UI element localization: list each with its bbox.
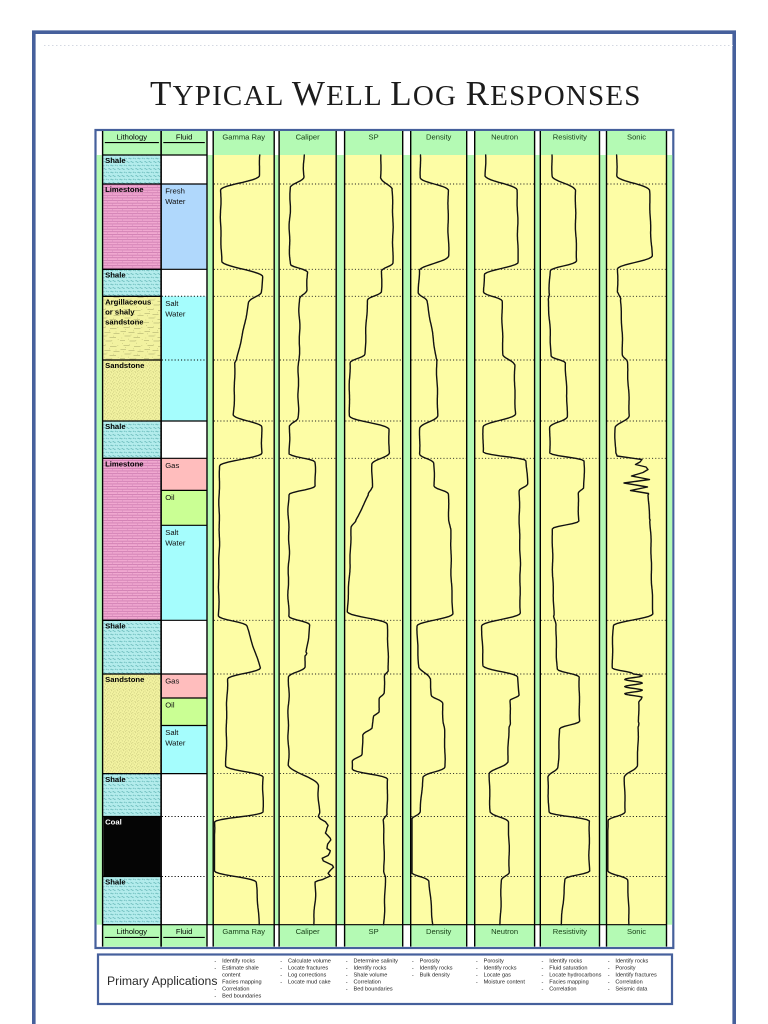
svg-text:Locate gas: Locate gas: [484, 973, 512, 979]
svg-text:Locate mud cake: Locate mud cake: [288, 980, 331, 986]
svg-text:Shale: Shale: [105, 422, 126, 431]
svg-text:-: -: [542, 973, 544, 979]
svg-text:-: -: [608, 973, 610, 979]
svg-text:Shale: Shale: [105, 156, 126, 165]
svg-text:TYPICAL WELL LOG RESPONSES: TYPICAL WELL LOG RESPONSES: [150, 74, 642, 113]
svg-text:-: -: [542, 959, 544, 965]
svg-text:Identify rocks: Identify rocks: [222, 959, 255, 965]
svg-text:sandstone: sandstone: [105, 318, 144, 327]
svg-text:Bed boundaries: Bed boundaries: [222, 994, 261, 1000]
svg-text:Seismic data: Seismic data: [615, 987, 648, 993]
svg-text:-: -: [214, 994, 216, 1000]
svg-text:-: -: [214, 987, 216, 993]
svg-text:Porosity: Porosity: [484, 959, 504, 965]
svg-text:Estimate shale: Estimate shale: [222, 966, 259, 972]
svg-text:Coal: Coal: [105, 818, 122, 827]
svg-text:SP: SP: [369, 133, 379, 142]
svg-text:Calculate volume: Calculate volume: [288, 959, 331, 965]
svg-text:Fluid: Fluid: [176, 133, 192, 142]
svg-text:-: -: [476, 959, 478, 965]
svg-text:Shale: Shale: [105, 622, 126, 631]
svg-text:Log corrections: Log corrections: [288, 973, 326, 979]
svg-text:Lithology: Lithology: [117, 133, 148, 142]
svg-text:Gamma Ray: Gamma Ray: [222, 133, 265, 142]
svg-text:Bed boundaries: Bed boundaries: [354, 987, 393, 993]
svg-text:Determine salinity: Determine salinity: [354, 959, 399, 965]
svg-text:Fluid saturation: Fluid saturation: [549, 966, 587, 972]
svg-text:Sandstone: Sandstone: [105, 361, 145, 370]
svg-text:Density: Density: [426, 133, 452, 142]
svg-text:Limestone: Limestone: [105, 460, 144, 469]
svg-text:-: -: [280, 980, 282, 986]
svg-text:Sonic: Sonic: [627, 927, 646, 936]
svg-text:Moisture content: Moisture content: [484, 980, 526, 986]
svg-text:-: -: [214, 980, 216, 986]
svg-text:Shale volume: Shale volume: [354, 973, 388, 979]
svg-text:Neutron: Neutron: [491, 927, 518, 936]
svg-text:-: -: [412, 966, 414, 972]
svg-text:Salt: Salt: [165, 728, 179, 737]
svg-text:-: -: [608, 980, 610, 986]
svg-text:-: -: [608, 966, 610, 972]
svg-text:-: -: [214, 959, 216, 965]
svg-text:Shale: Shale: [105, 878, 126, 887]
svg-text:Caliper: Caliper: [296, 927, 321, 936]
svg-text:Facies mapping: Facies mapping: [549, 980, 589, 986]
svg-text:Limestone: Limestone: [105, 185, 144, 194]
svg-text:Porosity: Porosity: [420, 959, 440, 965]
svg-text:Primary Applications: Primary Applications: [107, 974, 217, 988]
svg-text:-: -: [280, 973, 282, 979]
svg-text:Salt: Salt: [165, 528, 179, 537]
svg-text:Porosity: Porosity: [615, 966, 635, 972]
svg-text:SP: SP: [369, 927, 379, 936]
svg-text:Correlation: Correlation: [615, 980, 642, 986]
svg-text:Correlation: Correlation: [354, 980, 381, 986]
svg-text:Identify rocks: Identify rocks: [354, 966, 387, 972]
svg-text:-: -: [476, 966, 478, 972]
svg-text:Identify rocks: Identify rocks: [615, 959, 648, 965]
svg-text:-: -: [280, 966, 282, 972]
svg-text:-: -: [476, 973, 478, 979]
svg-text:-: -: [346, 966, 348, 972]
svg-text:Argillaceous: Argillaceous: [105, 298, 151, 307]
svg-text:Gas: Gas: [165, 461, 179, 470]
svg-text:-: -: [542, 966, 544, 972]
svg-text:Neutron: Neutron: [491, 133, 518, 142]
svg-text:Oil: Oil: [165, 493, 175, 502]
svg-text:-: -: [608, 987, 610, 993]
svg-text:Water: Water: [165, 197, 186, 206]
svg-text:-: -: [346, 973, 348, 979]
svg-text:Sonic: Sonic: [627, 133, 646, 142]
svg-text:Resistivity: Resistivity: [553, 133, 587, 142]
svg-text:Locate fractures: Locate fractures: [288, 966, 328, 972]
svg-text:Caliper: Caliper: [296, 133, 321, 142]
svg-text:Locate hydrocarbons: Locate hydrocarbons: [549, 973, 601, 979]
svg-text:-: -: [476, 980, 478, 986]
svg-text:or shaly: or shaly: [105, 308, 135, 317]
svg-text:Water: Water: [165, 739, 186, 748]
svg-text:-: -: [608, 959, 610, 965]
svg-text:content: content: [222, 973, 241, 979]
svg-text:Shale: Shale: [105, 775, 126, 784]
svg-text:Density: Density: [426, 927, 452, 936]
svg-text:-: -: [346, 987, 348, 993]
svg-text:Identify fractures: Identify fractures: [615, 973, 657, 979]
svg-text:-: -: [346, 959, 348, 965]
svg-text:-: -: [542, 980, 544, 986]
svg-text:Sandstone: Sandstone: [105, 675, 145, 684]
svg-text:Facies mapping: Facies mapping: [222, 980, 262, 986]
svg-text:Lithology: Lithology: [117, 927, 148, 936]
svg-text:Shale: Shale: [105, 271, 126, 280]
svg-text:-: -: [412, 973, 414, 979]
svg-text:Water: Water: [165, 538, 186, 547]
svg-text:Correlation: Correlation: [222, 987, 249, 993]
svg-text:Resistivity: Resistivity: [553, 927, 587, 936]
svg-text:Bulk density: Bulk density: [420, 973, 450, 979]
svg-text:-: -: [542, 987, 544, 993]
svg-text:Gamma Ray: Gamma Ray: [222, 927, 265, 936]
svg-text:Identify rocks: Identify rocks: [484, 966, 517, 972]
svg-text:Identify rocks: Identify rocks: [549, 959, 582, 965]
svg-text:Identify rocks: Identify rocks: [420, 966, 453, 972]
svg-text:-: -: [412, 959, 414, 965]
svg-text:-: -: [280, 959, 282, 965]
svg-text:Fluid: Fluid: [176, 927, 192, 936]
svg-text:Oil: Oil: [165, 701, 175, 710]
svg-text:Gas: Gas: [165, 677, 179, 686]
svg-text:Fresh: Fresh: [165, 187, 185, 196]
svg-text:Correlation: Correlation: [549, 987, 576, 993]
svg-text:-: -: [346, 980, 348, 986]
svg-text:-: -: [214, 966, 216, 972]
svg-text:Salt: Salt: [165, 299, 179, 308]
svg-text:Water: Water: [165, 309, 186, 318]
